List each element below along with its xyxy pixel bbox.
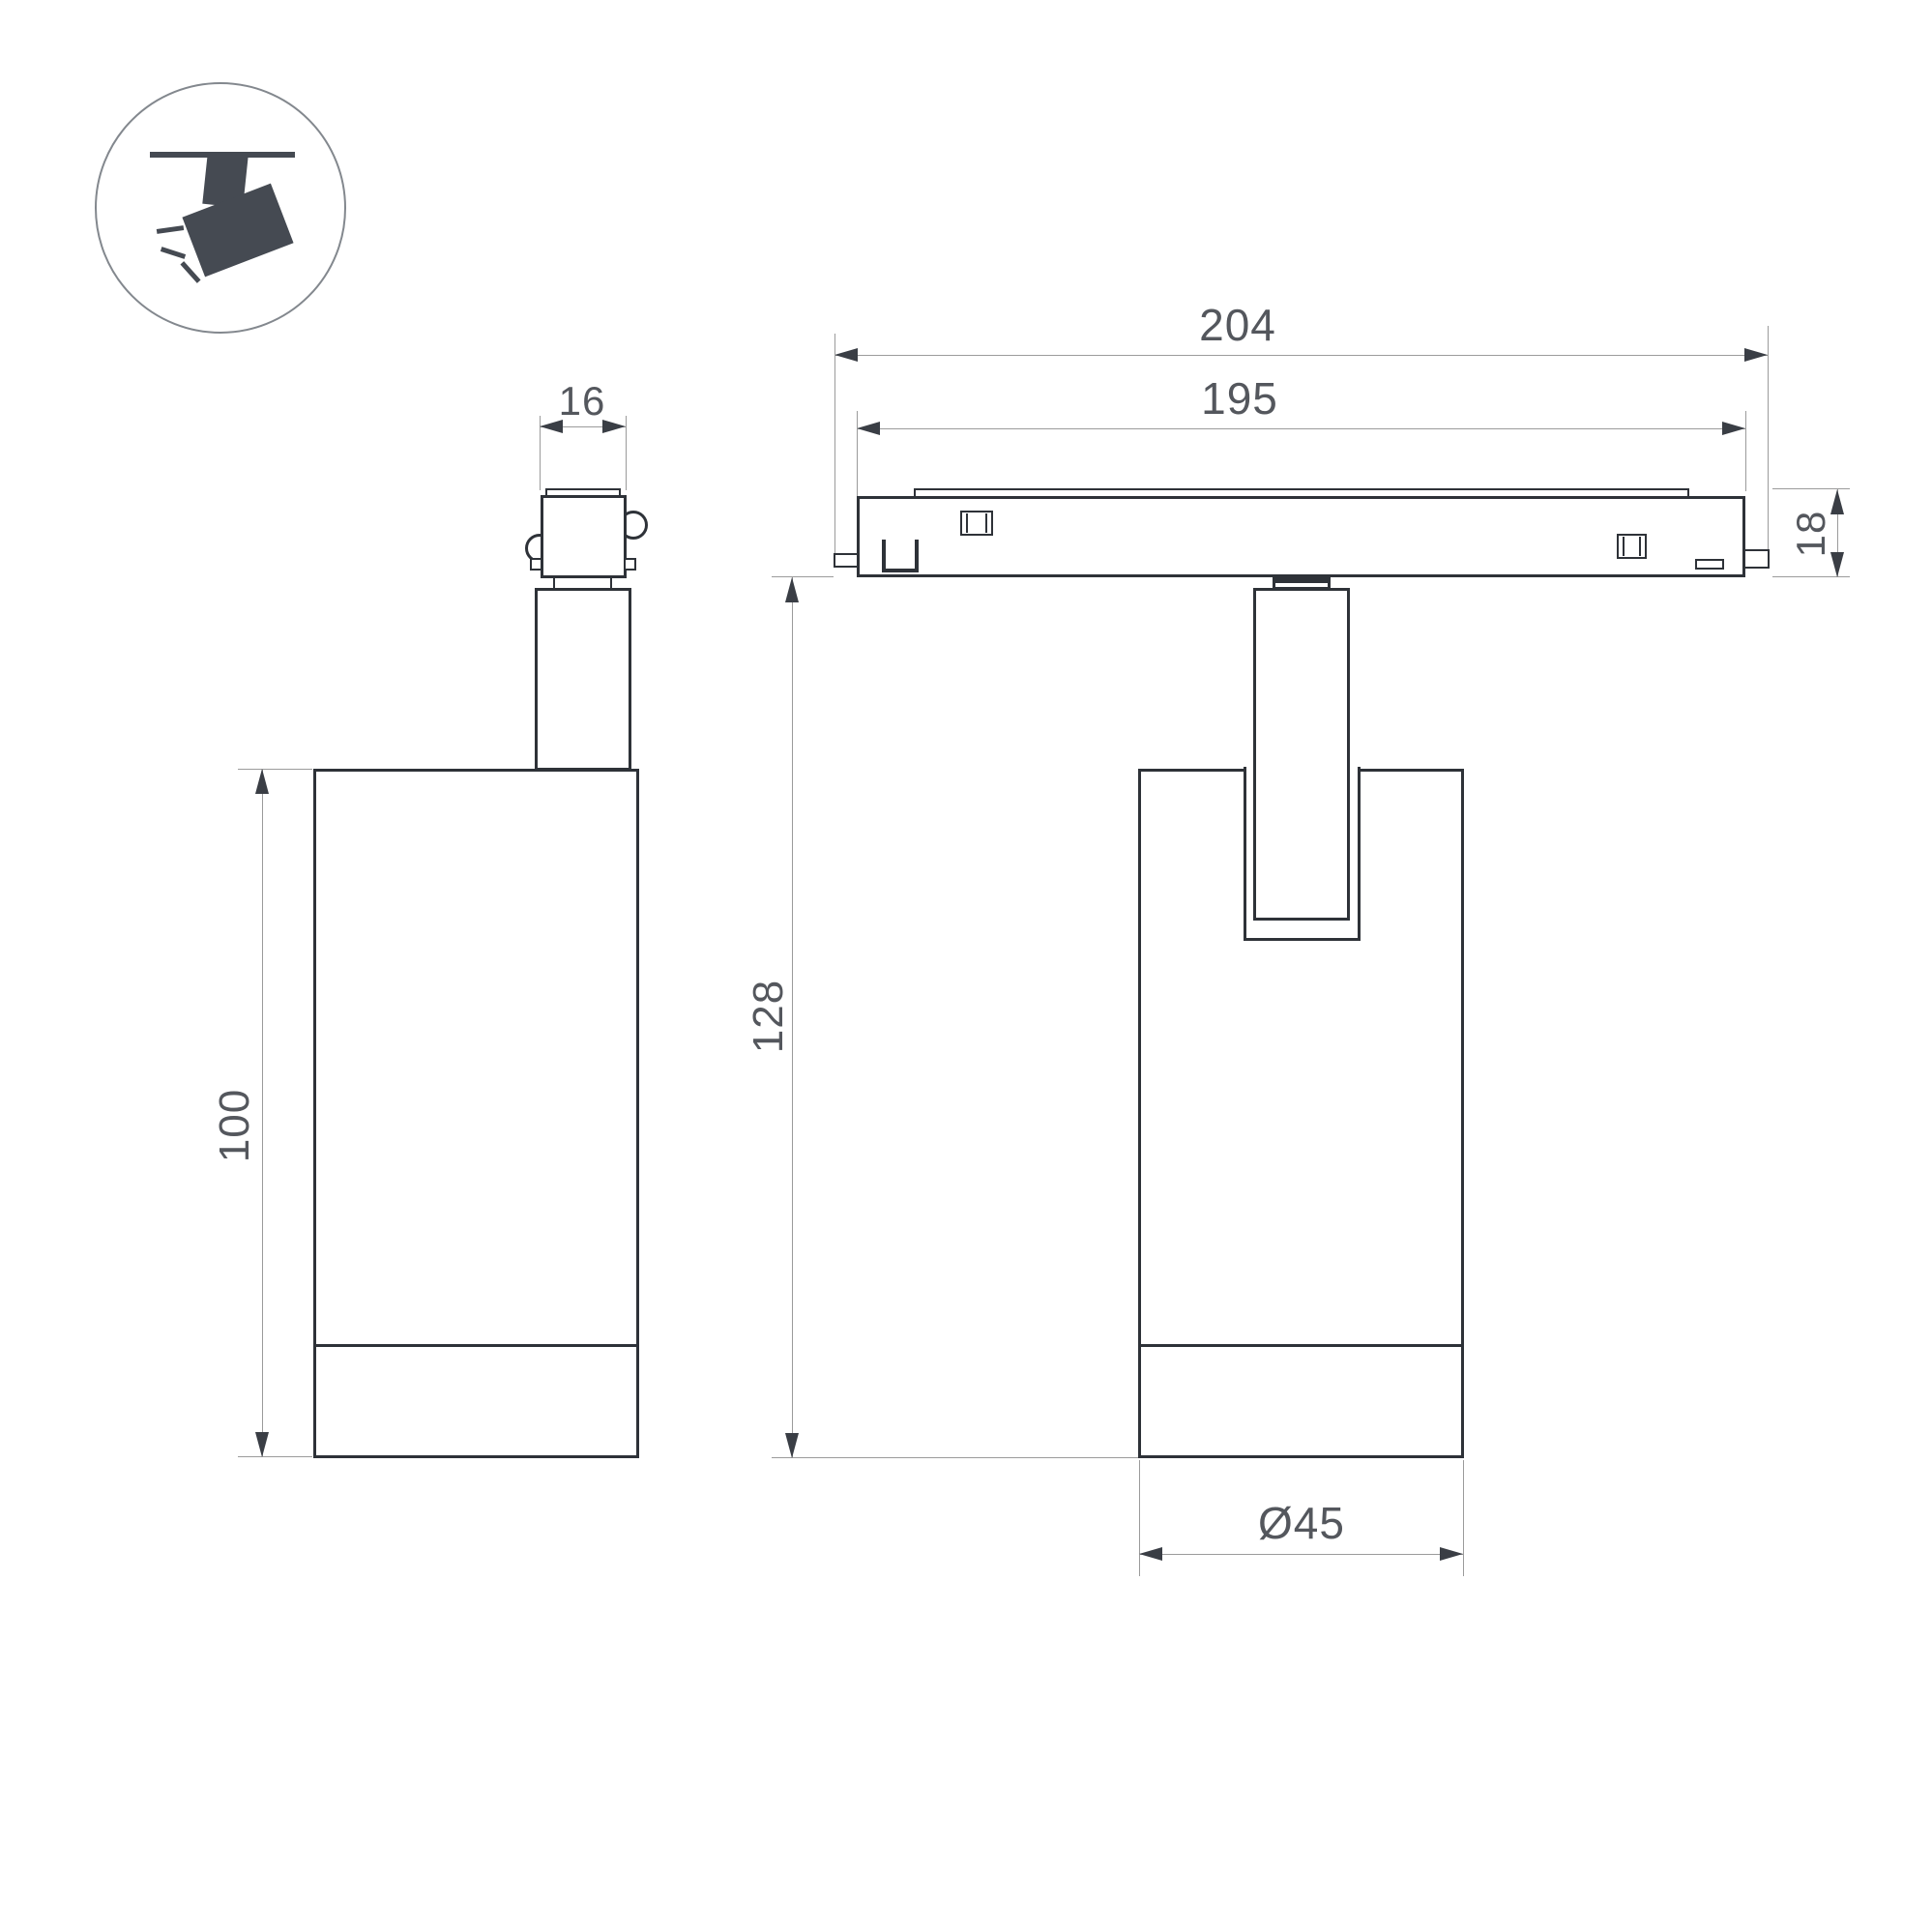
extension-line	[857, 411, 858, 496]
track-spotlight-icon	[95, 82, 346, 334]
adapter-tab-left	[530, 558, 542, 571]
dimension-line-100	[262, 769, 263, 1457]
dim-track-outer-label: 204	[1180, 303, 1296, 347]
extension-line	[626, 416, 627, 490]
dimension-line-195	[857, 428, 1745, 429]
side-lamp-divider	[316, 1344, 636, 1347]
adapter-tab-right	[624, 558, 636, 571]
track-clip-right-line	[1639, 537, 1641, 556]
side-lamp-body	[313, 769, 639, 1458]
track-end-tab-left	[834, 553, 859, 568]
track-clip-right	[1617, 534, 1647, 559]
front-stem	[1253, 588, 1350, 921]
arrowhead	[602, 420, 626, 433]
track-clip-left-line	[985, 513, 987, 533]
track-end-tab-right	[1743, 549, 1770, 569]
dimension-drawing-canvas: 16 100 204 195 18	[0, 0, 1932, 1932]
arrowhead	[540, 420, 563, 433]
dimension-line-45	[1139, 1554, 1463, 1555]
front-lamp-divider	[1141, 1344, 1461, 1347]
arrowhead	[785, 1433, 799, 1458]
dim-track-height-label: 18	[1789, 495, 1833, 572]
arrowhead	[857, 422, 880, 435]
arrowhead	[1139, 1547, 1162, 1561]
extension-line	[1768, 326, 1769, 549]
track-slot-detail	[1695, 559, 1724, 570]
dim-body-diameter-label: Ø45	[1234, 1501, 1369, 1545]
dim-adapter-width-label: 16	[543, 379, 621, 424]
track-bar	[857, 496, 1745, 577]
extension-line	[1463, 1460, 1464, 1576]
dim-total-height-label: 128	[746, 949, 791, 1084]
track-clip-right-line	[1623, 537, 1625, 556]
dimension-line-128	[792, 577, 793, 1458]
arrowhead	[785, 577, 799, 602]
dim-track-inner-label: 195	[1182, 376, 1298, 421]
arrowhead	[1744, 348, 1768, 362]
dim-body-height-label: 100	[213, 1068, 257, 1184]
adapter-neck	[553, 576, 612, 590]
arrowhead	[255, 1432, 269, 1457]
extension-line	[238, 769, 312, 770]
icon-lamp-body	[182, 184, 293, 278]
extension-line	[1745, 411, 1746, 491]
extension-line	[772, 576, 834, 577]
icon-light-ray	[161, 247, 186, 259]
side-stem	[535, 588, 631, 771]
arrowhead	[1722, 422, 1745, 435]
track-clip-left-line	[966, 513, 968, 533]
icon-light-ray	[180, 261, 200, 283]
arrowhead	[1440, 1547, 1463, 1561]
adapter-head	[541, 495, 627, 578]
arrowhead	[834, 348, 858, 362]
dimension-line-204	[834, 355, 1768, 356]
extension-line	[772, 1457, 1138, 1458]
extension-line	[238, 1456, 312, 1457]
arrowhead	[255, 769, 269, 794]
extension-line	[834, 334, 835, 553]
track-contact-bracket	[882, 540, 919, 572]
icon-light-ray	[157, 225, 184, 234]
